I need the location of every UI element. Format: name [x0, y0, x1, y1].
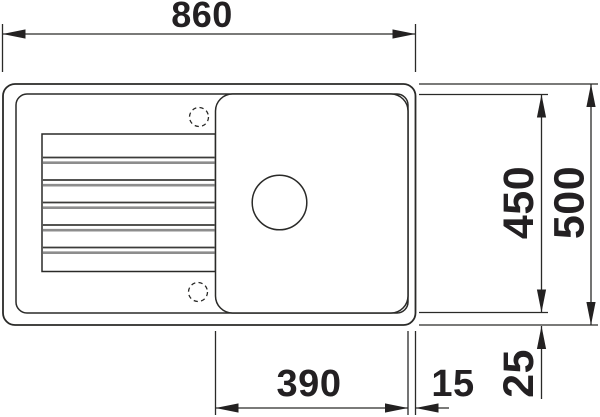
arrowhead-right — [385, 403, 408, 412]
dim-inner-field-depth: 450 — [419, 95, 548, 313]
dim-bowl-to-right-edge-label: 15 — [431, 363, 474, 405]
dim-inner-field-depth-label: 450 — [495, 166, 543, 239]
arrowhead-up — [537, 95, 546, 118]
dim-inner-field-to-bottom-edge-label: 25 — [495, 349, 543, 398]
bowl — [216, 94, 409, 313]
drain-hole — [252, 175, 307, 230]
arrowhead-left — [216, 403, 239, 412]
technical-drawing-canvas: 860 500 450 390 15 25 — [0, 0, 600, 417]
dim-overall-width: 860 — [3, 0, 416, 72]
arrowhead-down — [537, 290, 546, 313]
dim-bowl-to-right-edge: 15 — [416, 331, 475, 415]
arrowhead-left — [3, 29, 26, 38]
dim-overall-depth-label: 500 — [546, 166, 594, 239]
arrowhead-down — [586, 302, 595, 325]
arrowhead-up — [537, 326, 546, 349]
drainboard — [42, 134, 216, 272]
sink-body — [3, 84, 416, 325]
bowl-outline — [216, 94, 409, 313]
arrowhead-up — [586, 84, 595, 107]
sink-dimension-drawing: 860 500 450 390 15 25 — [0, 0, 600, 417]
dim-inner-field-to-bottom-edge: 25 — [495, 326, 546, 399]
dim-overall-width-label: 860 — [171, 0, 233, 35]
dim-bowl-width: 390 — [216, 331, 409, 415]
arrowhead-right — [393, 29, 416, 38]
dim-bowl-width-label: 390 — [277, 363, 342, 405]
